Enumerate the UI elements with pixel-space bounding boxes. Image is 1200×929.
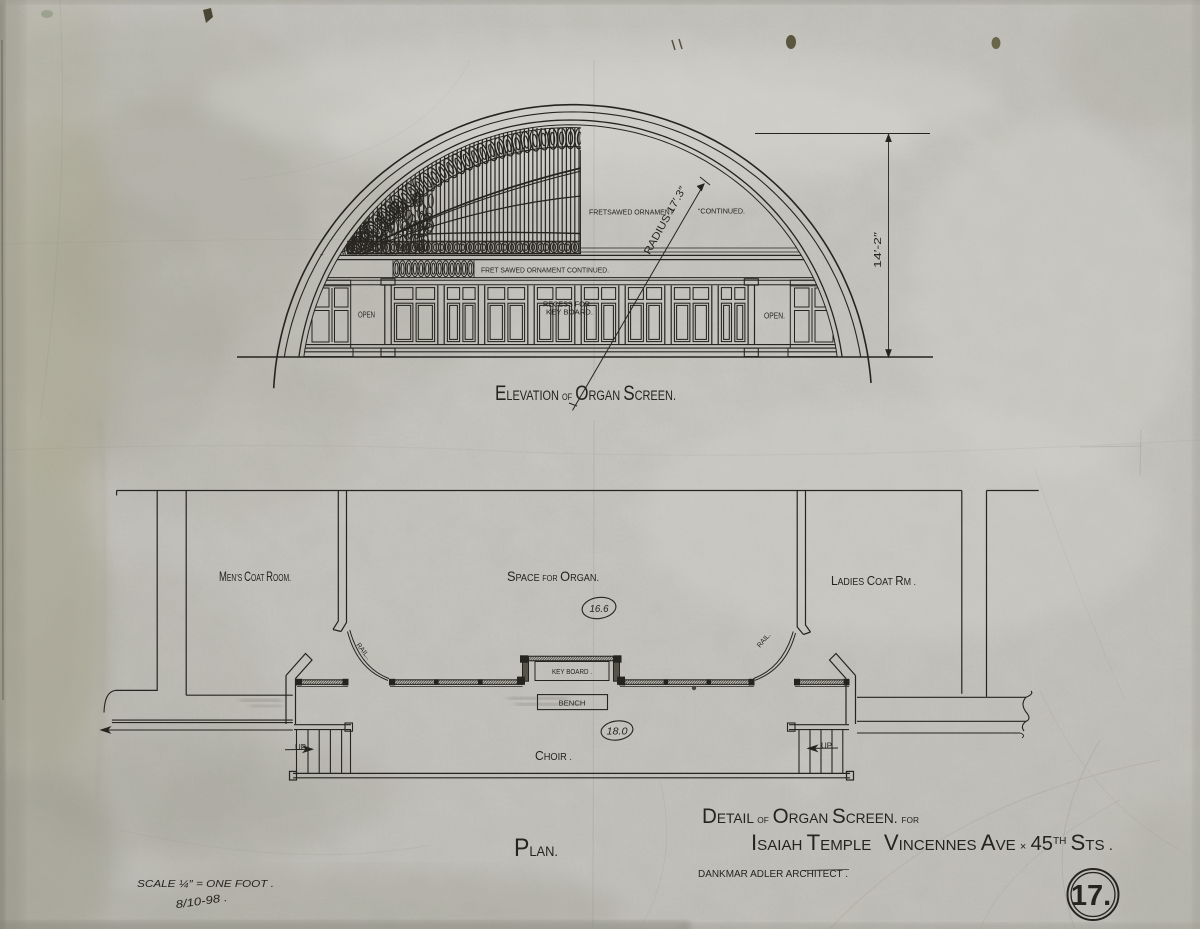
svg-text:FRET SAWED ORNAMENT CONTINUE: FRET SAWED ORNAMENT CONTINUED. [481, 267, 609, 274]
svg-text:FRETSAWED ORNAMENT: FRETSAWED ORNAMENT [589, 208, 674, 217]
svg-text:UP: UP [295, 742, 306, 752]
svg-text:16.6: 16.6 [590, 603, 609, 615]
svg-text:18.0: 18.0 [607, 726, 628, 738]
svg-text:DANKMAR ADLER ARCHITECT .: DANKMAR ADLER ARCHITECT . [698, 869, 848, 880]
svg-text:OPEN.: OPEN. [764, 312, 785, 321]
svg-text:OPEN: OPEN [358, 311, 375, 320]
svg-text:“CONTINUED.: “CONTINUED. [698, 207, 745, 216]
svg-text:SCALE ¼″ = ONE FOOT .: SCALE ¼″ = ONE FOOT . [137, 878, 274, 890]
svg-text:KEY BOARD .: KEY BOARD . [552, 667, 592, 676]
svg-text:UP: UP [821, 741, 832, 751]
svg-text:14′-2″: 14′-2″ [873, 231, 884, 268]
svg-text:17.: 17. [1071, 880, 1111, 912]
svg-text:KEY BOARD.: KEY BOARD. [546, 308, 593, 317]
